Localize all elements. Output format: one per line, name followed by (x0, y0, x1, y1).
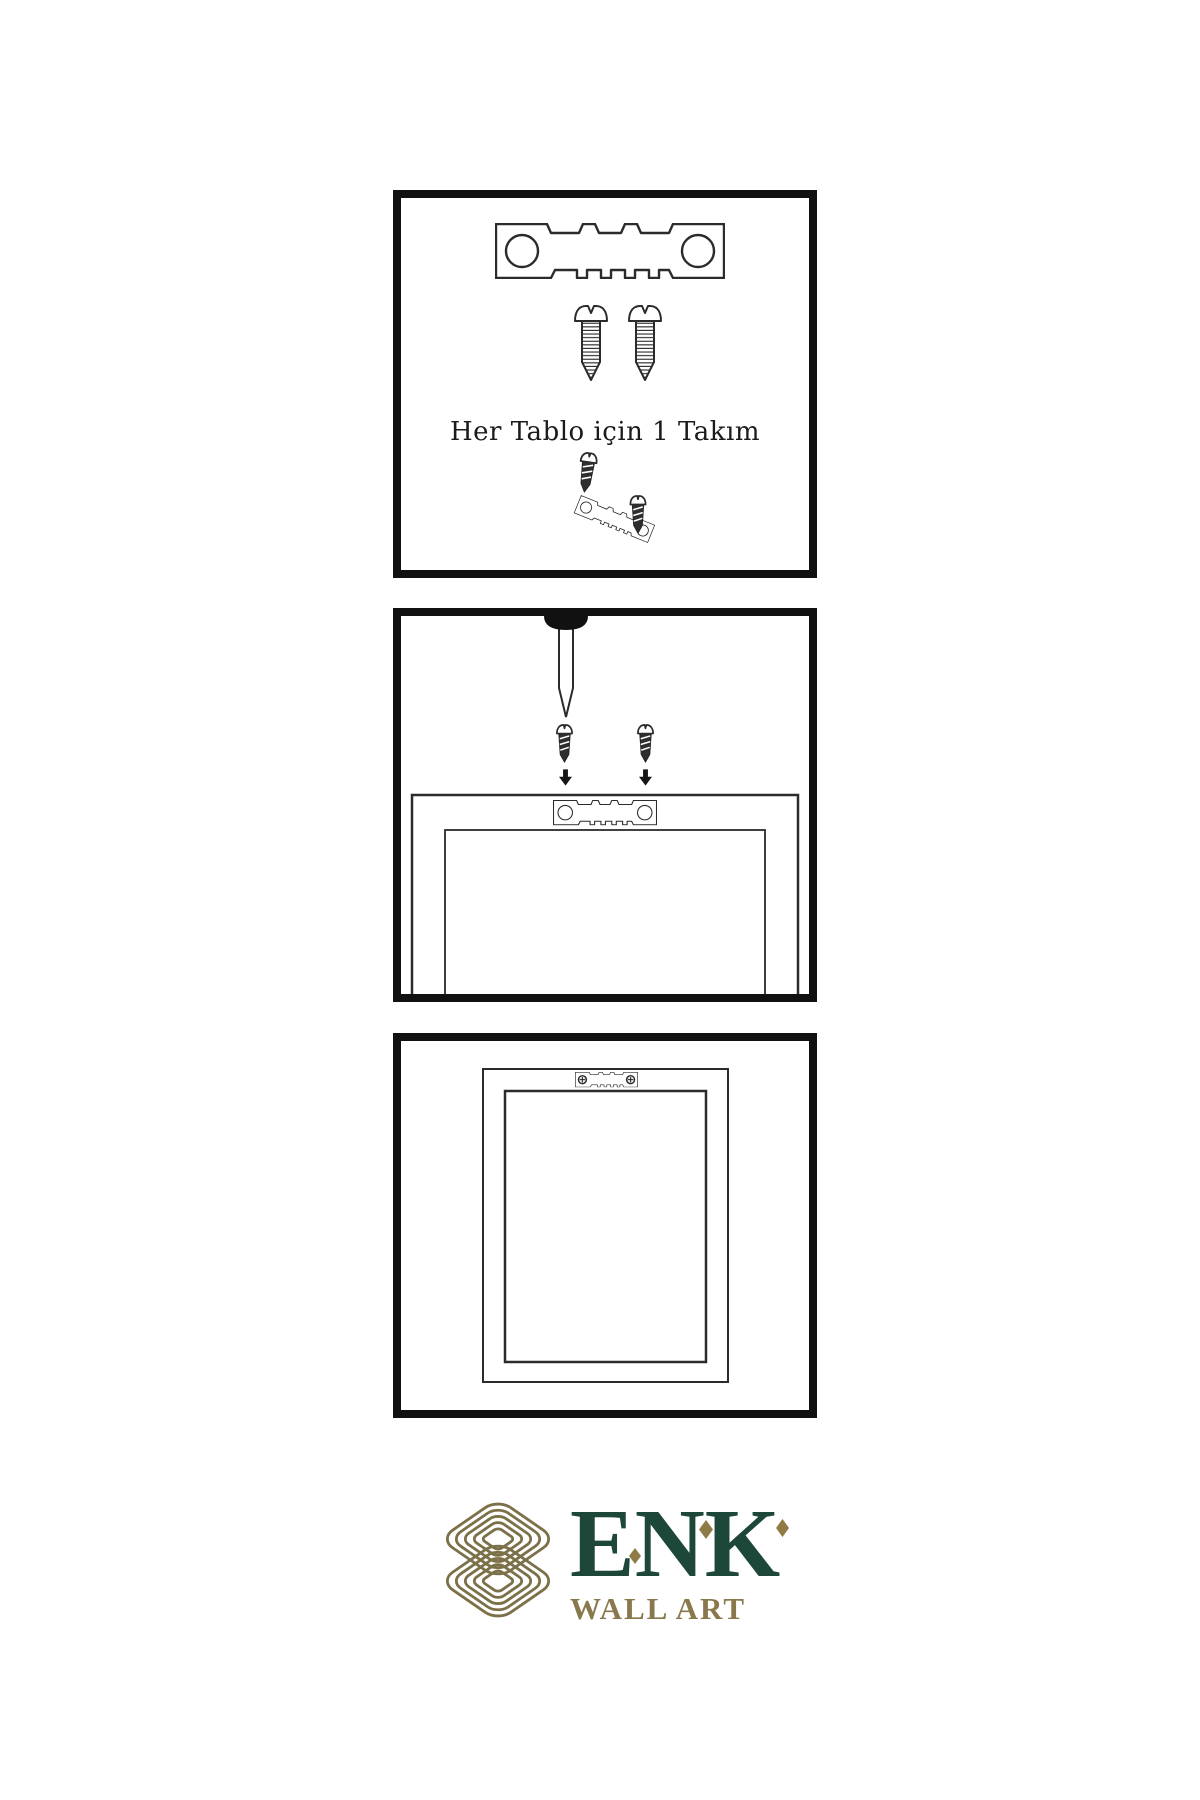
phillips-screw-icon (627, 1076, 634, 1083)
sawtooth-hanger-icon (553, 800, 656, 824)
screw-dark-icon (576, 452, 597, 493)
frame-inner-edge (445, 830, 765, 994)
screw-icon (629, 306, 661, 380)
step3-graphic (401, 1041, 809, 1410)
brand-name: ENK (570, 1495, 780, 1592)
instruction-step-2 (393, 608, 817, 1002)
nail-icon (559, 620, 573, 717)
down-arrow-icon (559, 769, 572, 785)
step1-caption: Her Tablo için 1 Takım (401, 417, 809, 447)
instruction-step-1: Her Tablo için 1 Takım (393, 190, 817, 578)
screw-icon (575, 306, 607, 380)
brand-tagline: WALL ART (570, 1593, 746, 1624)
nail-head-mound (544, 616, 588, 630)
sawtooth-hanger-icon (496, 224, 724, 278)
step1-graphic (401, 198, 809, 570)
page: Her Tablo için 1 Takım (0, 0, 1200, 1800)
phillips-screw-icon (579, 1076, 586, 1083)
down-arrow-icon (639, 769, 652, 785)
screw-dark-icon (638, 725, 653, 762)
knot-icon (434, 1492, 562, 1628)
instruction-step-3 (393, 1033, 817, 1418)
step2-graphic (401, 616, 809, 994)
screw-dark-icon (557, 725, 572, 762)
frame-inner-edge (505, 1091, 706, 1362)
